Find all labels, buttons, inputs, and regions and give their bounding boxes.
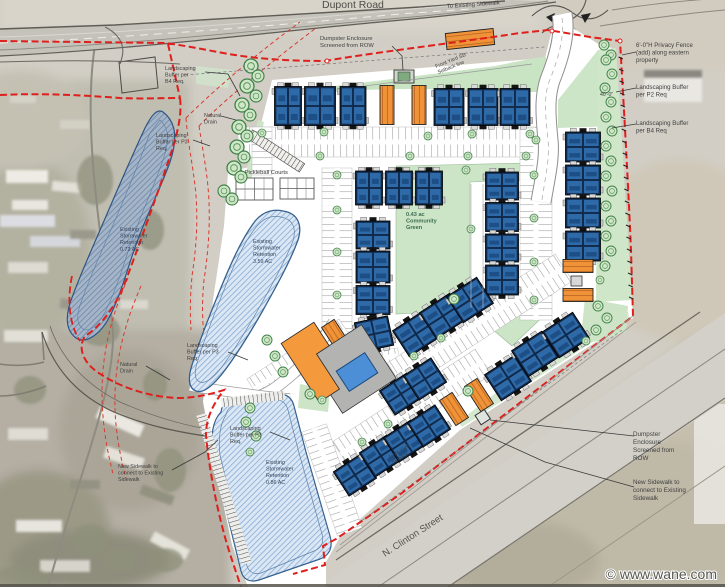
svg-text:40'-0": 40'-0" [600,92,613,98]
svg-text:© www.wane.com: © www.wane.com [606,566,717,582]
svg-text:Dumpster EnclosureScreened fro: Dumpster EnclosureScreened from ROW [320,36,374,49]
svg-text:Dupont Road: Dupont Road [322,0,384,11]
